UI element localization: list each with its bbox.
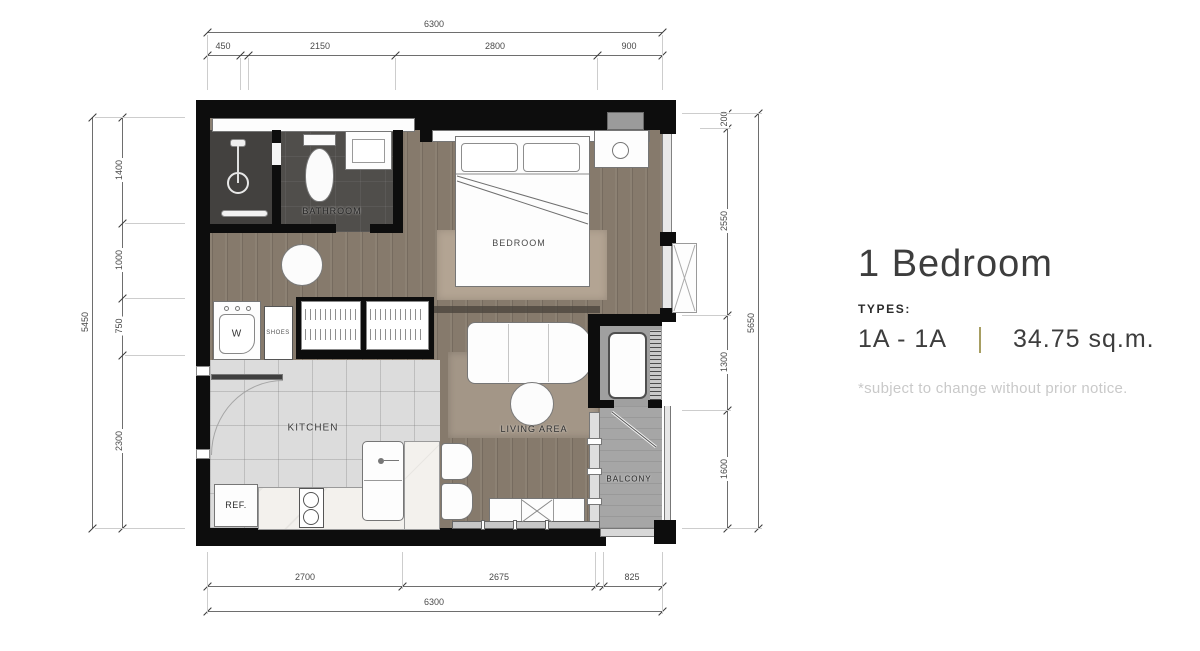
balcony-floor (600, 406, 662, 528)
sink-divider (364, 480, 402, 481)
dim-line-right-total (758, 113, 759, 528)
wall-top-left (196, 100, 420, 118)
dim-right-1: 2550 (719, 209, 729, 233)
pillow-left (461, 143, 518, 172)
window-tick-3 (545, 520, 549, 530)
closet-hangers-1 (305, 309, 357, 320)
dining-chair-2 (441, 483, 473, 520)
wall-bottom (196, 528, 606, 546)
dim-ext (662, 552, 663, 614)
washer-knob-3 (246, 306, 251, 311)
stove-burner-1 (303, 492, 319, 508)
dim-left-2: 750 (114, 316, 124, 335)
balcony-label: BALCONY (606, 475, 651, 484)
balcony-rail-right (664, 406, 671, 532)
tv-console-div-1 (521, 499, 522, 523)
bathroom-label: BATHROOM (302, 206, 361, 216)
wall-bathroom-right (393, 130, 403, 230)
wall-balcony-top-left (588, 400, 614, 408)
closet-hangers-3 (370, 309, 425, 320)
wall-bathroom-bottom-left (210, 224, 336, 233)
faucet-dot (378, 458, 384, 464)
kitchen-label: KITCHEN (288, 423, 339, 434)
dim-top-1: 2150 (308, 41, 332, 51)
dim-top-total: 6300 (422, 19, 446, 29)
page-title: 1 Bedroom (858, 243, 1198, 286)
entry-door-leaf (211, 374, 283, 380)
dim-left-0: 1400 (114, 158, 124, 182)
wall-utility-left (588, 314, 600, 406)
entry-door-jamb-top (196, 366, 210, 376)
info-panel: 1 Bedroom TYPES: 1A - 1A 34.75 sq.m. *su… (858, 243, 1198, 397)
tv-console-div-2 (553, 499, 554, 523)
washer-knob-2 (235, 306, 240, 311)
dim-ext (240, 58, 241, 90)
sofa-cushion-line-1 (508, 324, 509, 382)
island-counter (404, 441, 440, 530)
dim-ext (682, 113, 762, 114)
wall-bathroom-bottom-right (370, 224, 403, 233)
dim-bottom-2: 825 (622, 572, 641, 582)
dim-top-2: 2800 (483, 41, 507, 51)
unit-type-value: 1A - 1A (858, 325, 947, 354)
dim-top-0: 450 (213, 41, 232, 51)
bedroom-window (662, 130, 672, 318)
floor-plan-page: BATHROOM BEDROOM W SHOES KITCHEN REF. (0, 0, 1200, 651)
dim-top-3: 900 (619, 41, 638, 51)
dim-line-top-seg (207, 55, 662, 56)
hall-stool (281, 244, 323, 286)
disclaimer-text: *subject to change without prior notice. (858, 380, 1198, 397)
sofa (467, 322, 593, 384)
living-label: LIVING AREA (500, 424, 567, 434)
post-right-top (660, 100, 676, 134)
dim-ext (125, 223, 185, 224)
dim-ext (95, 117, 185, 118)
towel-bar (221, 210, 268, 217)
wall-bedroom-stub (420, 112, 432, 142)
utility-appliance (608, 332, 647, 399)
nightstand-lamp (612, 142, 629, 159)
dim-left-1: 1000 (114, 248, 124, 272)
dim-right-2: 1300 (719, 350, 729, 374)
dim-ext (682, 315, 731, 316)
ac-ledge (672, 243, 697, 313)
unit-area-value: 34.75 sq.m. (1013, 325, 1155, 354)
types-label: TYPES: (858, 302, 1198, 316)
window-tick-2 (513, 520, 517, 530)
stove-burner-2 (303, 509, 319, 525)
bedroom-label: BEDROOM (492, 238, 546, 248)
window-mullion-1 (587, 438, 602, 445)
wall-left (196, 100, 210, 532)
dim-ext (603, 552, 604, 589)
washer-label: W (232, 329, 242, 340)
dim-ext (662, 35, 663, 90)
dim-ext (395, 58, 396, 90)
dim-ext (207, 552, 208, 614)
dim-left-total: 5450 (80, 310, 90, 334)
dim-ext (682, 528, 762, 529)
accent-divider (979, 327, 981, 353)
window-tick-1 (481, 520, 485, 530)
type-area-row: 1A - 1A 34.75 sq.m. (858, 325, 1198, 354)
dim-ext (597, 58, 598, 90)
dim-ext (125, 355, 185, 356)
dim-line-bottom-total (207, 611, 662, 612)
dim-ext (207, 35, 208, 90)
dim-right-total: 5650 (746, 311, 756, 335)
bathroom-sink-basin (352, 139, 385, 163)
dim-ext (125, 298, 185, 299)
dim-ext (248, 58, 249, 90)
dim-left-3: 2300 (114, 429, 124, 453)
washer-knob-1 (224, 306, 229, 311)
dim-ext (402, 552, 403, 589)
living-window-band (452, 521, 600, 529)
dim-bottom-1: 2675 (487, 572, 511, 582)
dim-bottom-0: 2700 (293, 572, 317, 582)
toilet-tank (303, 134, 336, 146)
shoe-cabinet-label: SHOES (266, 330, 290, 336)
dining-chair-1 (441, 443, 473, 480)
dim-bottom-total: 6300 (422, 597, 446, 607)
dim-line-top-total (207, 32, 662, 33)
bedroom-threshold (428, 306, 600, 313)
dim-ext (700, 128, 731, 129)
dim-ext (682, 410, 731, 411)
closet-hangers-2 (305, 329, 357, 340)
dim-line-left-total (92, 117, 93, 528)
coffee-table (510, 382, 554, 426)
sink-counter (362, 441, 404, 521)
dim-ext (595, 552, 596, 589)
toilet-bowl (305, 148, 334, 202)
top-shelf (212, 118, 415, 132)
shower-head (230, 139, 246, 147)
ac-unit-box (607, 112, 644, 130)
shower-drain (227, 172, 249, 194)
post-bottom-right (654, 520, 676, 544)
closet-hangers-4 (370, 329, 425, 340)
window-mullion-2 (587, 468, 602, 475)
wall-balcony-top-right (648, 400, 662, 408)
utility-louver-wall (650, 330, 661, 400)
sofa-cushion-line-2 (548, 324, 549, 382)
faucet-arm (384, 460, 399, 461)
entry-door-jamb-bottom (196, 449, 210, 459)
shower-door-gap (272, 143, 281, 165)
dim-right-3: 1600 (719, 457, 729, 481)
dim-ext (95, 528, 185, 529)
pillow-right (523, 143, 580, 172)
fridge-label: REF. (225, 500, 247, 510)
window-mullion-3 (587, 498, 602, 505)
